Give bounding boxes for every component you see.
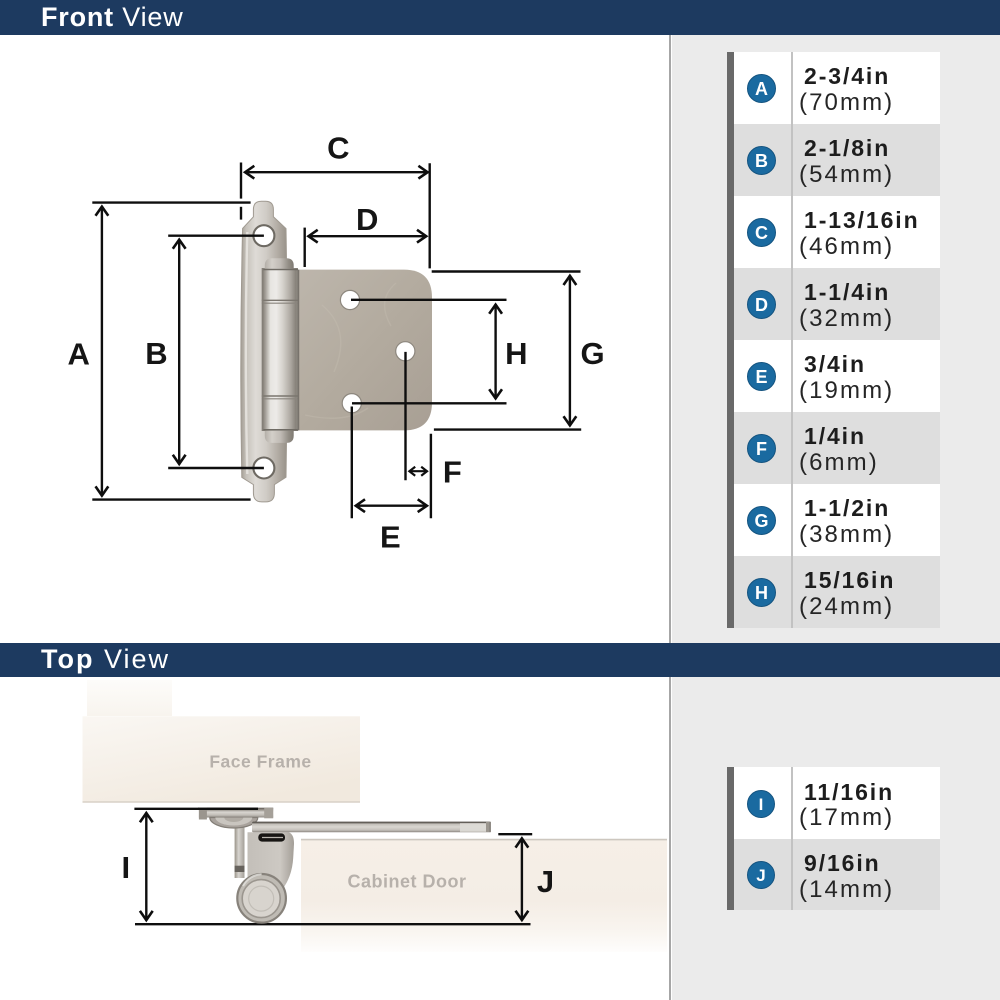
svg-text:B: B: [145, 336, 167, 371]
svg-text:J: J: [537, 864, 554, 899]
svg-text:I: I: [121, 850, 130, 885]
svg-text:H: H: [505, 336, 527, 371]
svg-text:E: E: [380, 520, 401, 555]
svg-text:G: G: [581, 336, 605, 371]
svg-text:D: D: [356, 202, 378, 237]
svg-text:Face Frame: Face Frame: [209, 751, 311, 771]
svg-text:C: C: [327, 130, 349, 165]
svg-text:Cabinet Door: Cabinet Door: [347, 872, 466, 892]
svg-text:A: A: [68, 337, 90, 372]
svg-text:F: F: [443, 455, 462, 490]
